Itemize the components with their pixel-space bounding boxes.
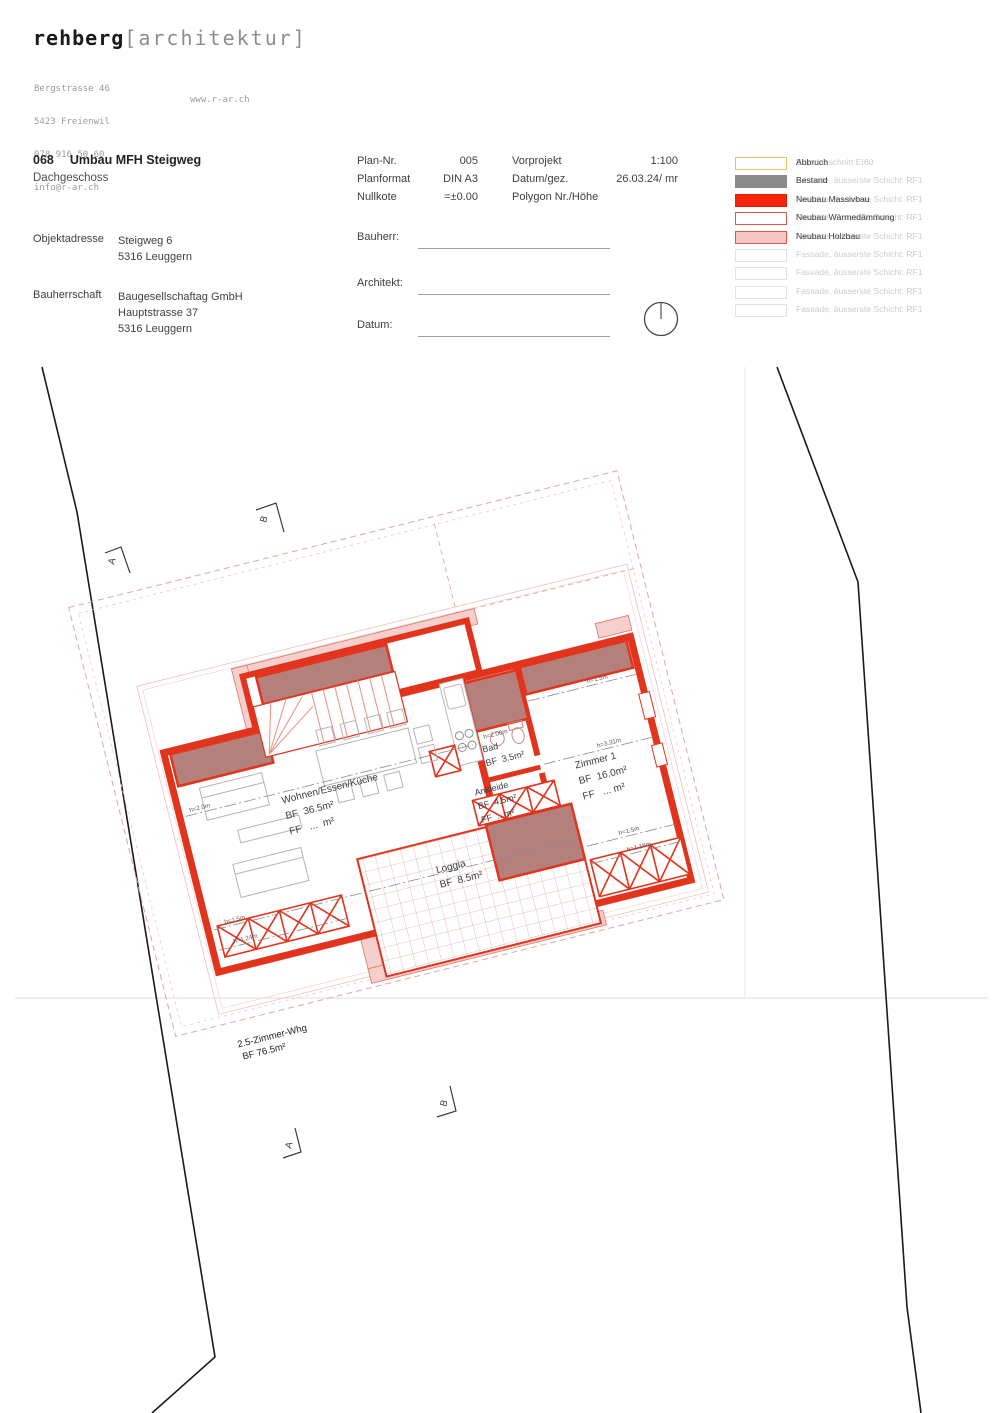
meta-label-plan-nr: Plan-Nr.	[357, 155, 397, 167]
section-letter: B	[258, 515, 270, 524]
apartment-label: 2.5-Zimmer-Whg BF 76.5m²	[236, 1023, 311, 1064]
section-letter: A	[283, 1140, 295, 1150]
signature-line-bauherr	[418, 247, 610, 249]
legend-swatch-bestand	[735, 175, 787, 188]
section-marker-a-top: A	[105, 547, 130, 573]
legend-label: Abbruch	[796, 157, 828, 167]
legend-label: Neubau Holzbau	[796, 231, 860, 241]
legend-swatch-fassade	[735, 286, 787, 299]
site-boundary-left	[42, 367, 215, 1413]
signature-label-architekt: Architekt:	[357, 277, 403, 289]
building-plan: h=2.0m h=1.5m h=1.24m h=2.00m h=1.5m h=3…	[69, 471, 734, 1077]
address-line: 5423 Freienwil	[34, 117, 110, 128]
legend-label: Neubau Massivbau	[796, 194, 870, 204]
meta-value-plan-nr: 005	[410, 155, 478, 167]
object-address-line: 5316 Leuggern	[118, 249, 192, 265]
legend-row: Fassade, äusserste Schicht: RF1 Bestand	[735, 175, 995, 189]
legend-row: Fassade, äusserste Schicht: RF1	[735, 267, 995, 281]
section-letter: B	[438, 1099, 450, 1108]
client-line: 5316 Leuggern	[118, 321, 243, 337]
section-letter: A	[106, 556, 118, 566]
brand-name: rehberg	[33, 26, 124, 50]
object-address-label: Objektadresse	[33, 233, 104, 245]
legend-row: Fassade, äusserste Schicht: RF1	[735, 304, 995, 318]
client-line: Baugesellschaftag GmbH	[118, 289, 243, 305]
section-marker-a-bottom: A	[283, 1128, 301, 1158]
company-logo: rehberg[architektur]	[33, 26, 307, 50]
meta-label-phase: Vorprojekt	[512, 155, 562, 167]
client-value: Baugesellschaftag GmbH Hauptstrasse 37 5…	[118, 289, 243, 337]
legend-row: Fassade, äusserste Schicht: RF1	[735, 286, 995, 300]
legend-swatch-fassade	[735, 249, 787, 262]
signature-line-architekt	[418, 293, 610, 295]
brand-bracket: [architektur]	[124, 26, 307, 50]
legend-row: Fassade, äusserste Schicht: RF1 Neubau M…	[735, 194, 995, 208]
roof-ridge-dashed	[434, 479, 636, 613]
legend-ghost-text: Fassade, äusserste Schicht: RF1	[796, 304, 923, 314]
north-indicator-icon	[641, 299, 681, 339]
signature-label-datum: Datum:	[357, 319, 392, 331]
legend-label: Bestand	[796, 175, 828, 185]
legend-swatch-massivbau	[735, 194, 787, 207]
legend-label: Neubau Wärmedämmung	[796, 212, 894, 222]
meta-value-planformat: DIN A3	[410, 173, 478, 185]
legend-row: Fassade, äusserste Schicht: RF1	[735, 249, 995, 263]
client-line: Hauptstrasse 37	[118, 305, 243, 321]
legend-swatch-abbruch	[735, 157, 787, 170]
site-boundary-right	[777, 367, 921, 1413]
legend-row: Fassade, äusserste Schicht: RF1 Neubau W…	[735, 212, 995, 226]
section-marker-b-bottom: B	[437, 1086, 456, 1117]
section-marker-b-top: B	[256, 503, 284, 532]
legend-swatch-fassade	[735, 267, 787, 280]
meta-label-date: Datum/gez.	[512, 173, 568, 185]
legend-ghost-text: Fassade, äusserste Schicht: RF1	[796, 249, 923, 259]
meta-value-scale: 1:100	[578, 155, 678, 167]
object-address-value: Steigweg 6 5316 Leuggern	[118, 233, 192, 265]
legend-swatch-holzbau	[735, 231, 787, 244]
floor-plan-drawing: B A B A	[0, 365, 1000, 1413]
project-number: 068	[33, 153, 54, 167]
project-name: Umbau MFH Steigweg	[70, 153, 201, 167]
legend-swatch-fassade	[735, 304, 787, 317]
meta-label-polygon: Polygon Nr./Höhe	[512, 191, 598, 203]
address-line: Bergstrasse 46	[34, 84, 110, 95]
project-title: 068Umbau MFH Steigweg	[33, 153, 201, 167]
legend-row: Brandabschnitt EI60 Abbruch	[735, 157, 995, 171]
signature-label-bauherr: Bauherr:	[357, 231, 399, 243]
client-label: Bauherrschaft	[33, 289, 101, 301]
object-address-line: Steigweg 6	[118, 233, 192, 249]
meta-label-nullkote: Nullkote	[357, 191, 397, 203]
legend-row: Fassade, äusserste Schicht: RF1 Neubau H…	[735, 231, 995, 245]
floor-label: Dachgeschoss	[33, 172, 108, 184]
meta-label-planformat: Planformat	[357, 173, 410, 185]
legend-ghost-text: Fassade, äusserste Schicht: RF1	[796, 267, 923, 277]
legend-swatch-waermedaemmung	[735, 212, 787, 225]
meta-value-nullkote: =±0.00	[410, 191, 478, 203]
meta-value-date: 26.03.24/ mr	[578, 173, 678, 185]
legend-ghost-text: Fassade, äusserste Schicht: RF1	[796, 286, 923, 296]
company-website: www.r-ar.ch	[190, 95, 250, 105]
address-line: info@r-ar.ch	[34, 183, 110, 194]
signature-line-datum	[418, 335, 610, 337]
